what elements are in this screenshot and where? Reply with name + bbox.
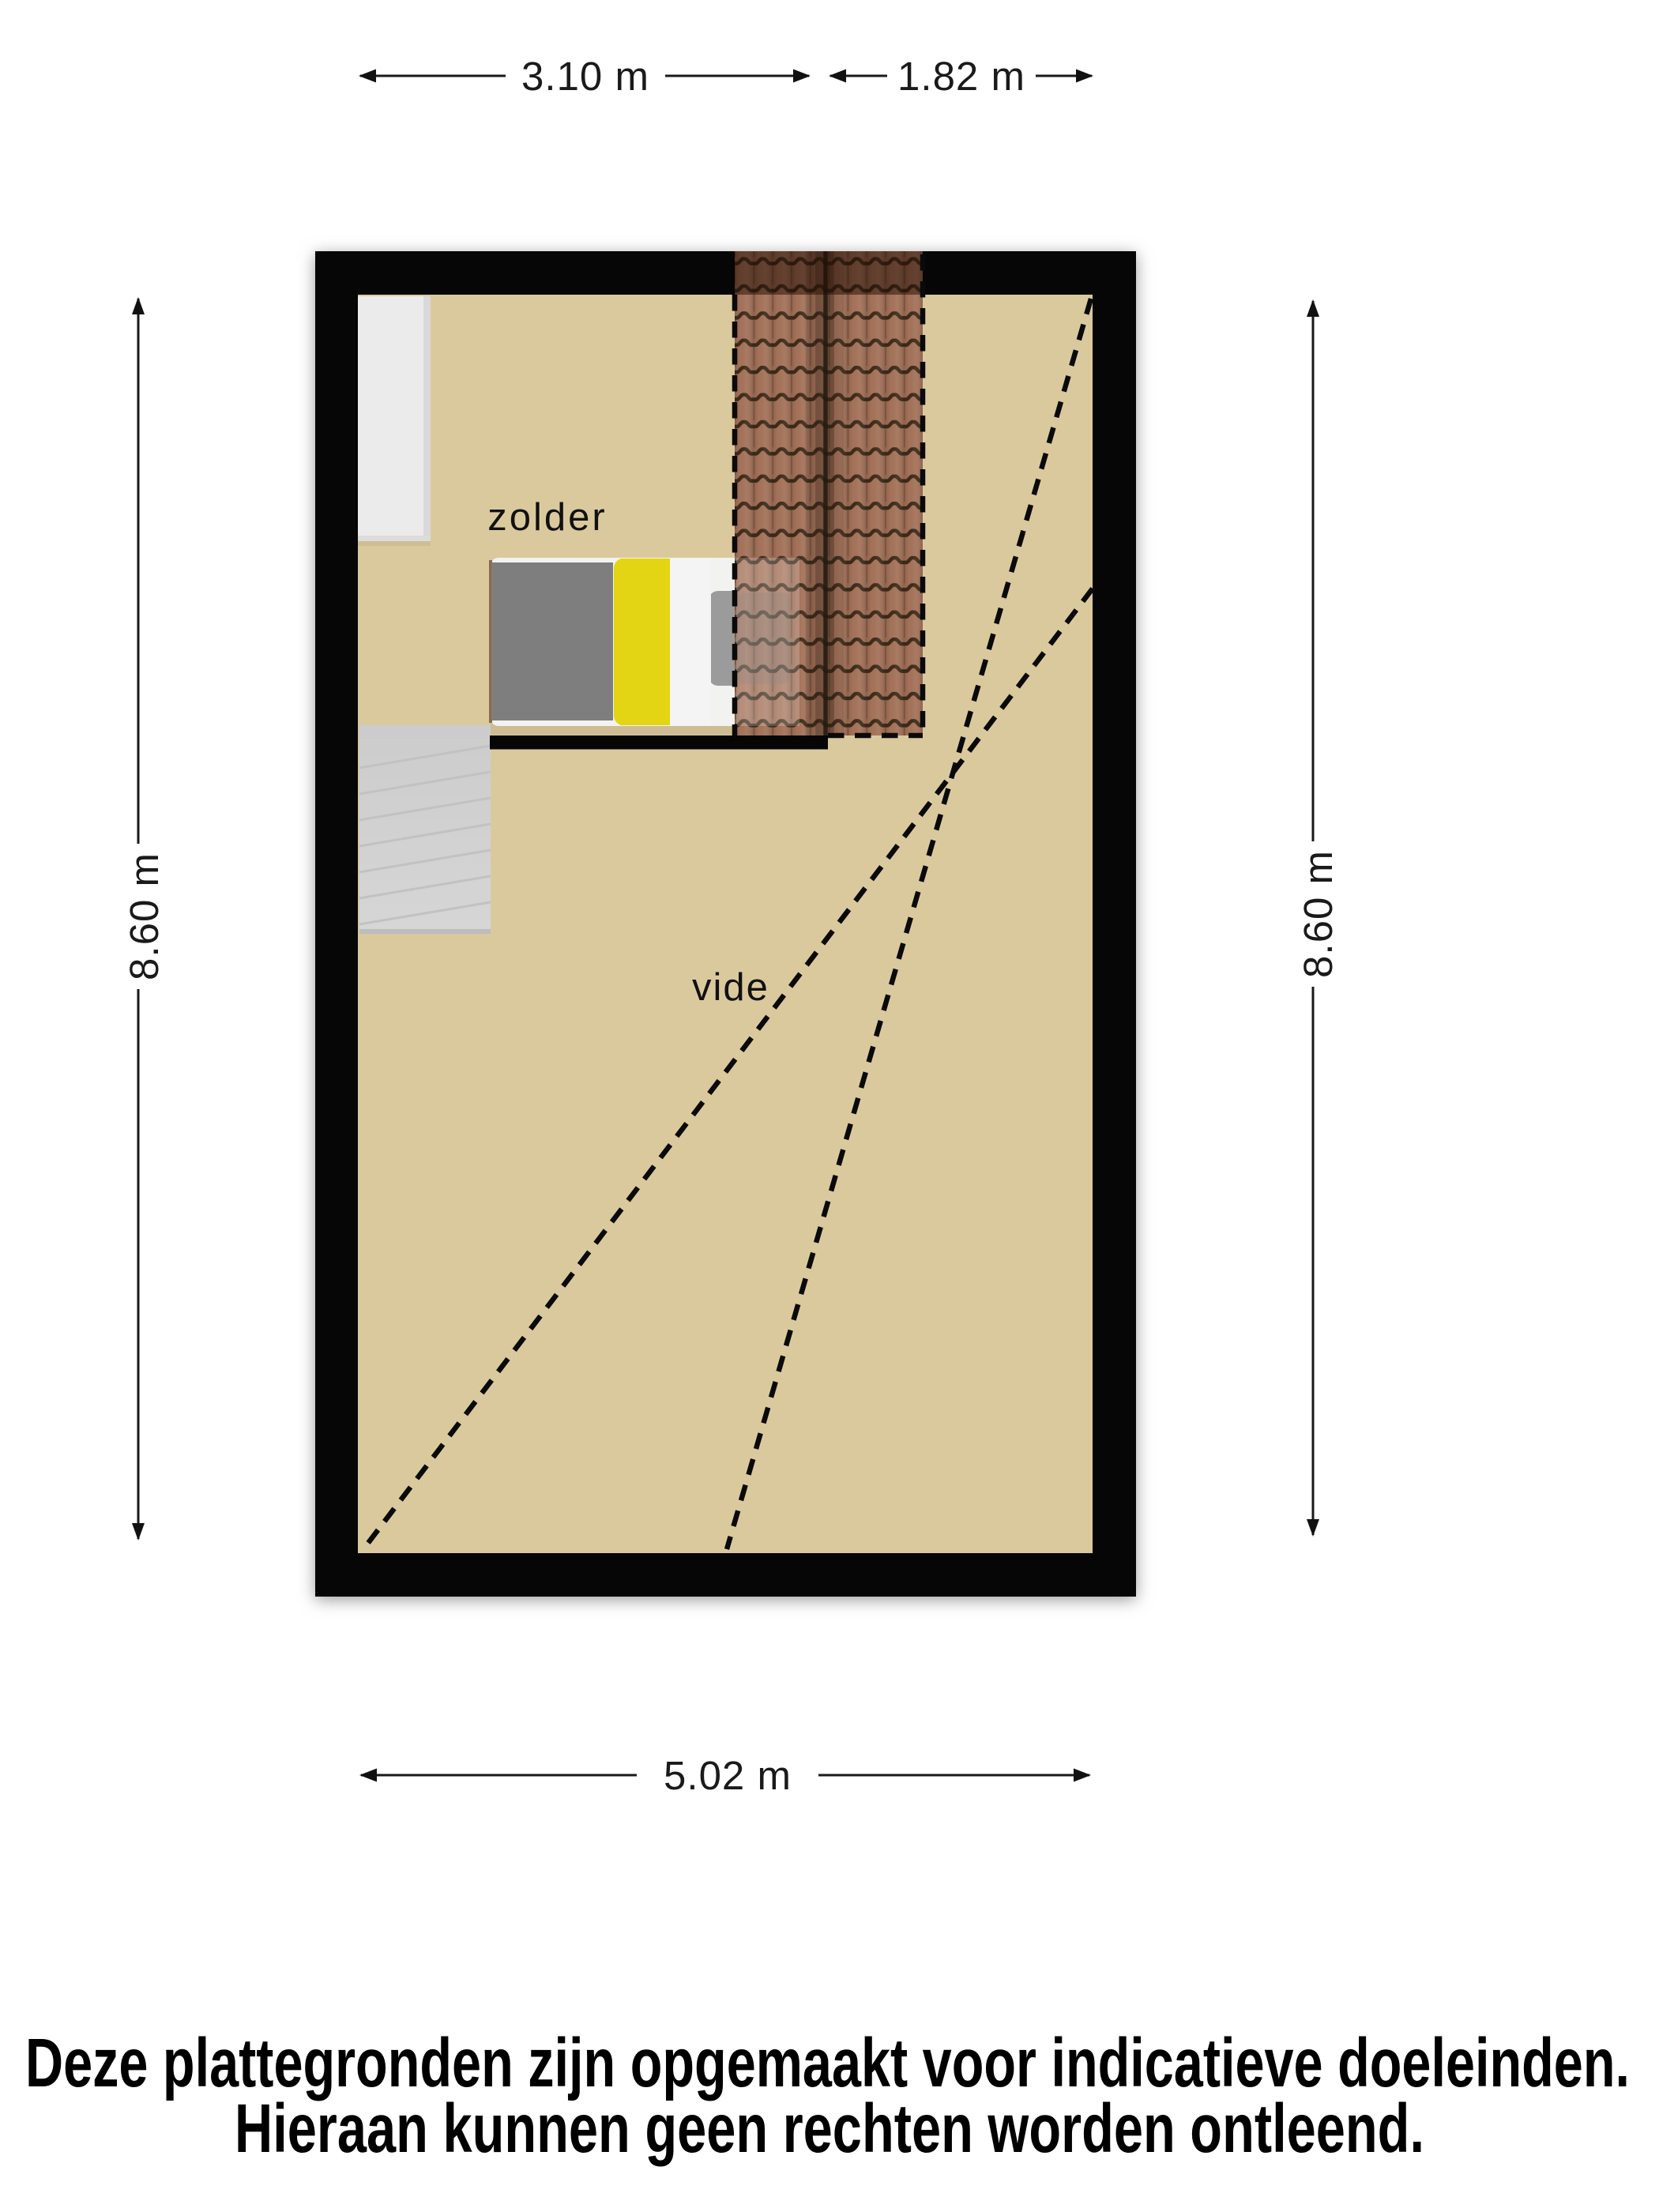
svg-text:vide: vide	[692, 966, 769, 1009]
svg-text:zolder: zolder	[487, 496, 607, 539]
svg-text:8.60 m: 8.60 m	[122, 852, 167, 980]
svg-text:1.82 m: 1.82 m	[897, 54, 1025, 99]
svg-text:5.02 m: 5.02 m	[664, 1753, 792, 1798]
svg-text:8.60 m: 8.60 m	[1296, 850, 1341, 978]
svg-text:Hieraan kunnen geen rechten wo: Hieraan kunnen geen rechten worden ontle…	[235, 2090, 1424, 2167]
svg-text:3.10 m: 3.10 m	[521, 54, 649, 99]
